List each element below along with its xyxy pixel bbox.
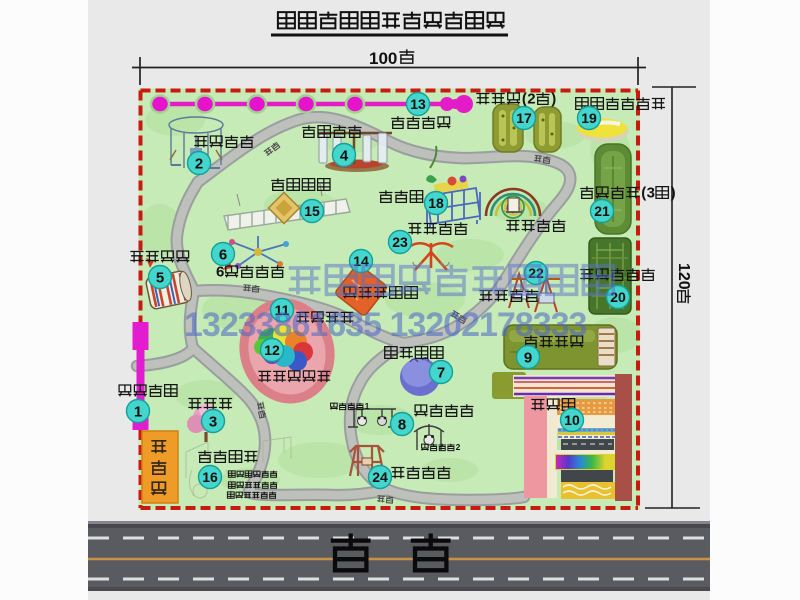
svg-text:): ) [551, 90, 556, 107]
svg-text:): ) [671, 184, 676, 201]
svg-text:9: 9 [524, 349, 532, 366]
svg-text:19: 19 [581, 110, 597, 126]
svg-text:12: 12 [264, 342, 280, 358]
svg-text:21: 21 [594, 203, 610, 219]
svg-text:120: 120 [675, 263, 692, 290]
svg-text:100: 100 [369, 49, 397, 68]
svg-text:8: 8 [398, 416, 406, 433]
svg-text:4: 4 [340, 147, 349, 164]
svg-text:(: ( [522, 90, 527, 107]
svg-text:3: 3 [647, 184, 655, 201]
svg-text:2: 2 [456, 442, 461, 452]
svg-text:(: ( [641, 184, 646, 201]
svg-text:2: 2 [527, 90, 535, 107]
svg-text:2: 2 [195, 155, 203, 172]
svg-text:1: 1 [134, 403, 142, 420]
svg-text:7: 7 [437, 364, 445, 381]
svg-text:3: 3 [209, 413, 217, 430]
svg-text:17: 17 [516, 110, 532, 126]
svg-text:23: 23 [392, 234, 408, 250]
svg-text:18: 18 [428, 195, 444, 211]
svg-text:15: 15 [304, 203, 320, 219]
svg-text:6: 6 [219, 246, 227, 263]
svg-text:10: 10 [564, 412, 580, 428]
svg-text:13: 13 [410, 96, 426, 112]
svg-text:5: 5 [156, 269, 164, 286]
svg-text:24: 24 [372, 469, 388, 485]
svg-text:16: 16 [202, 469, 218, 485]
svg-text:13233861635 13202178333: 13233861635 13202178333 [184, 306, 587, 344]
svg-text:1: 1 [365, 401, 370, 411]
